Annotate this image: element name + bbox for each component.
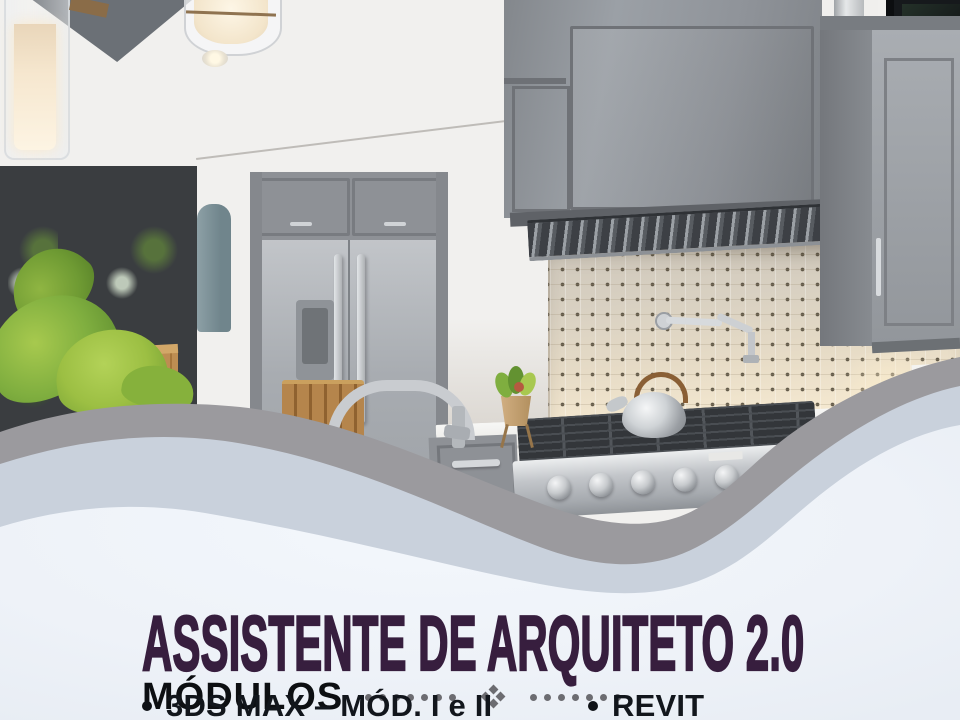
poster-canvas: ASSISTENTE DE ARQUITETO 2.0 MÓDULOS 3DS … — [0, 0, 960, 720]
module-label: REVIT — [612, 690, 704, 720]
module-item-revit: REVIT — [588, 690, 704, 720]
bullet-icon — [142, 701, 152, 711]
module-item-3dsmax: 3DS MAX – MÓD. I e II — [142, 690, 492, 720]
bullet-icon — [588, 701, 598, 711]
module-label: 3DS MAX – MÓD. I e II — [166, 690, 492, 720]
